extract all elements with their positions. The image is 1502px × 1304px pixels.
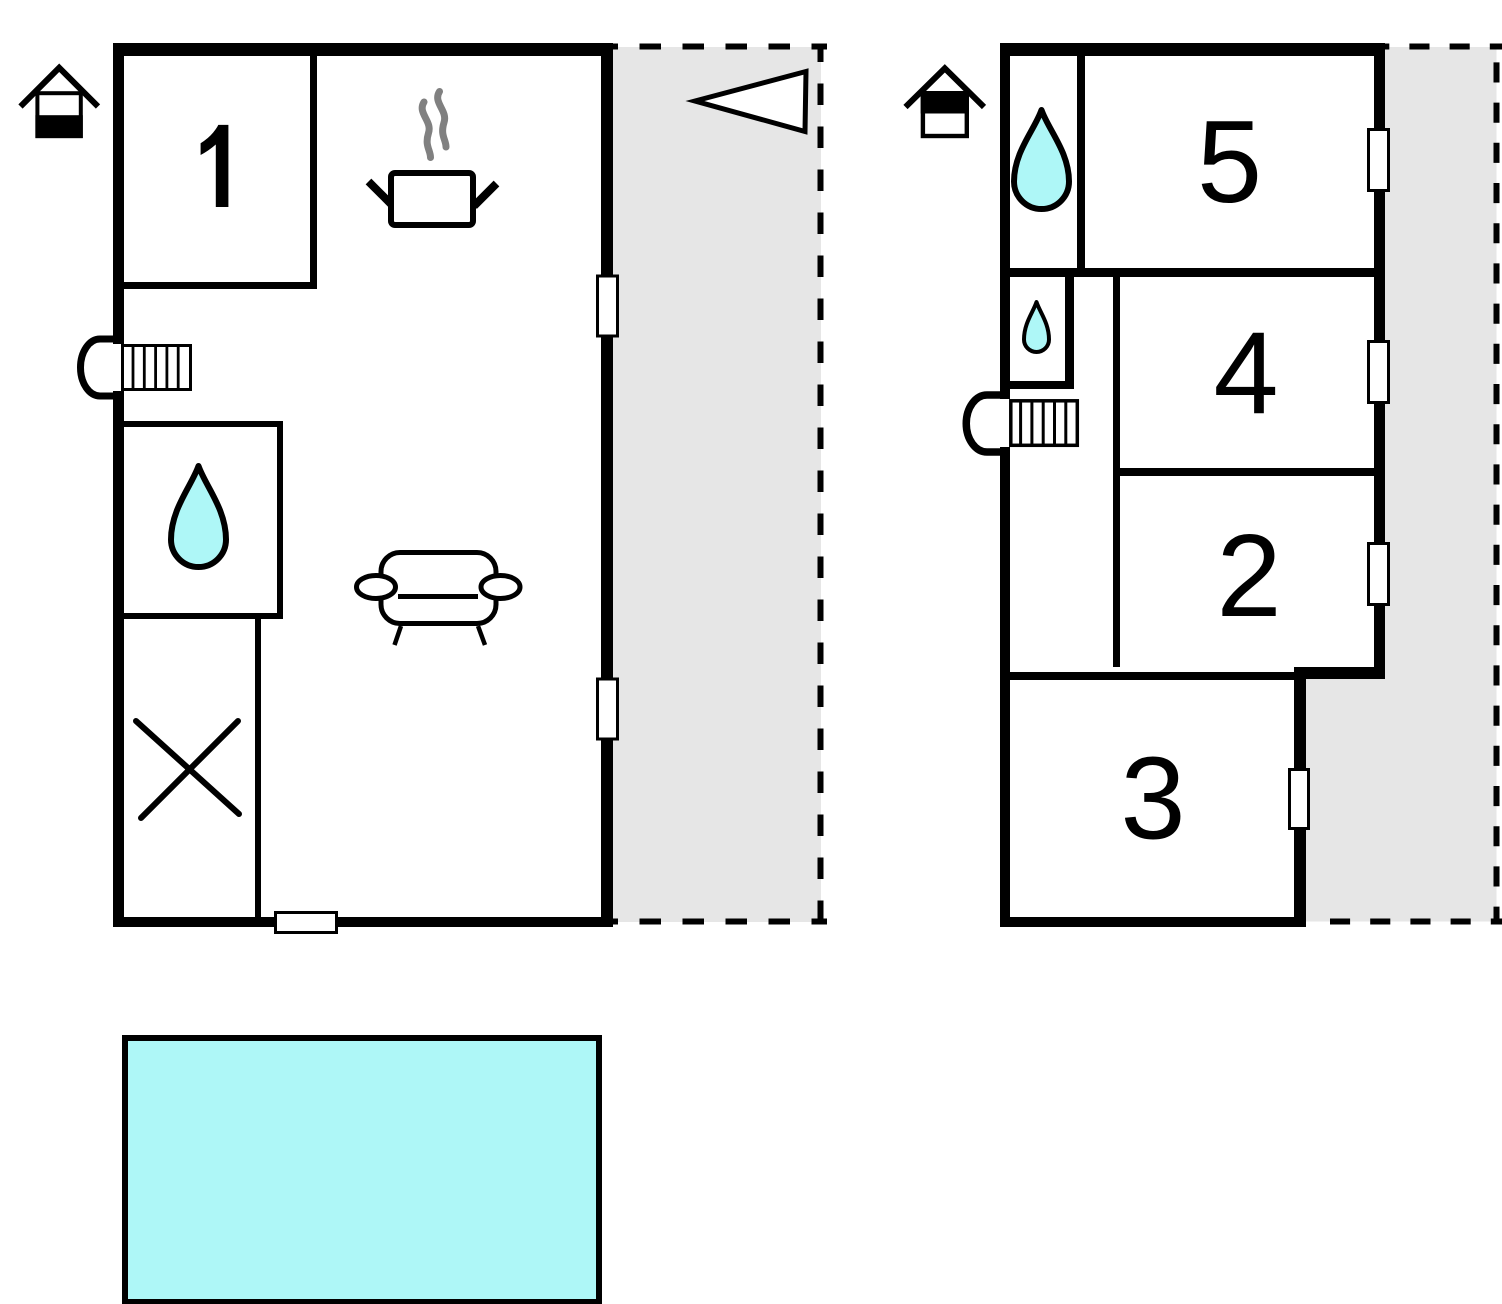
svg-text:4: 4 xyxy=(1213,307,1278,438)
svg-text:2: 2 xyxy=(1216,510,1281,641)
svg-text:3: 3 xyxy=(1120,733,1185,864)
svg-text:5: 5 xyxy=(1197,96,1262,227)
